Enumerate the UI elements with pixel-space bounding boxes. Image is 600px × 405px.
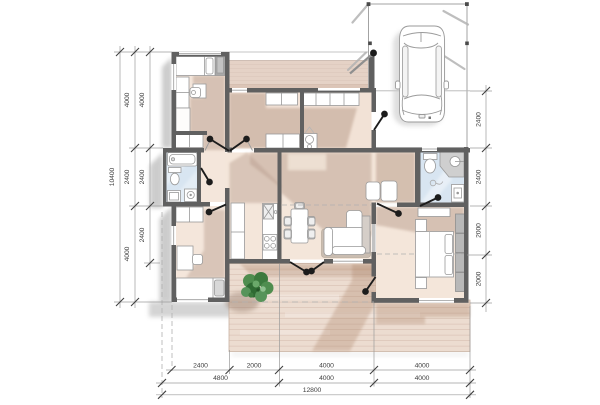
svg-text:4000: 4000 [124,92,131,107]
svg-text:10400: 10400 [109,167,116,186]
svg-text:4000: 4000 [139,92,146,107]
svg-text:2400: 2400 [139,227,146,242]
svg-text:2000: 2000 [476,223,483,238]
svg-text:2400: 2400 [476,112,483,127]
svg-text:4000: 4000 [124,246,131,261]
svg-text:4000: 4000 [319,375,334,382]
svg-text:2400: 2400 [193,362,208,369]
svg-text:4800: 4800 [213,375,228,382]
svg-text:4000: 4000 [415,375,430,382]
svg-text:12800: 12800 [303,387,322,394]
svg-text:4000: 4000 [415,362,430,369]
svg-text:2400: 2400 [124,169,131,184]
svg-text:2400: 2400 [139,169,146,184]
svg-text:2400: 2400 [476,169,483,184]
svg-text:4000: 4000 [319,362,334,369]
svg-text:2000: 2000 [476,271,483,286]
svg-text:2000: 2000 [247,362,262,369]
